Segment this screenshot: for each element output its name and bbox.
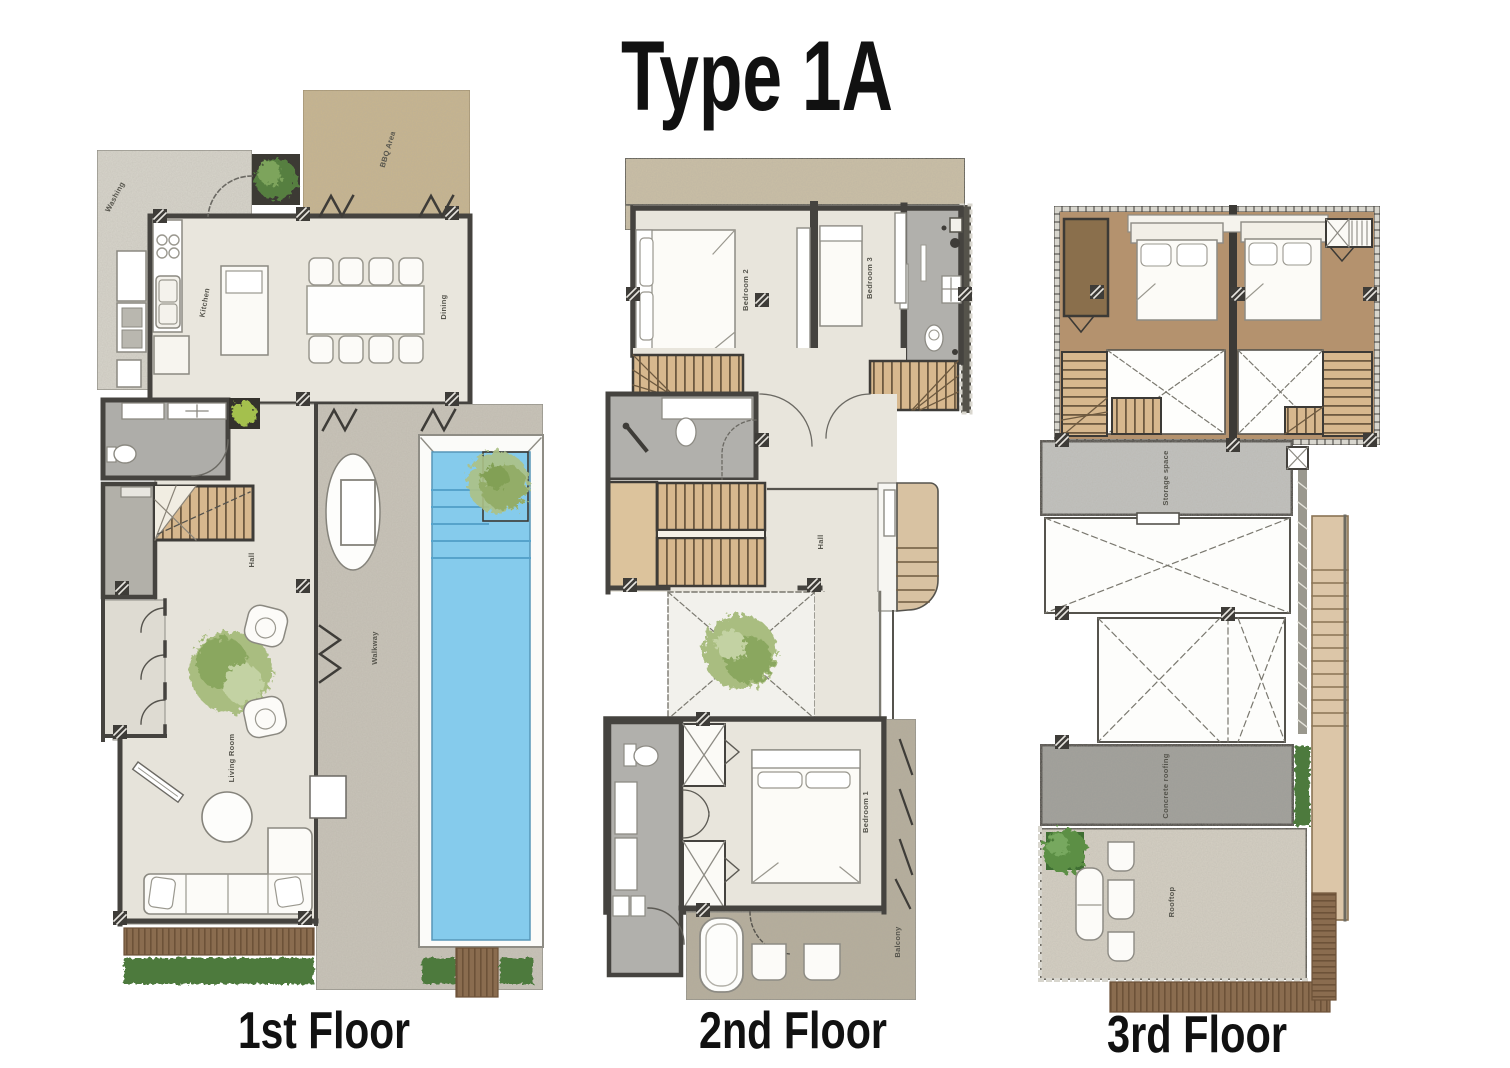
svg-text:Bedroom 2: Bedroom 2: [741, 269, 750, 311]
svg-text:Walkway: Walkway: [370, 631, 379, 665]
svg-text:Type 1A: Type 1A: [621, 20, 893, 131]
svg-text:Concrete roofing: Concrete roofing: [1161, 753, 1170, 818]
svg-text:1st Floor: 1st Floor: [238, 1002, 410, 1060]
svg-text:Living Room: Living Room: [227, 734, 236, 783]
svg-text:Balcony: Balcony: [893, 926, 902, 958]
svg-text:Rooftop: Rooftop: [1167, 886, 1176, 917]
svg-text:Bedroom 3: Bedroom 3: [865, 257, 874, 299]
svg-text:2nd Floor: 2nd Floor: [699, 1002, 887, 1060]
svg-text:Dining: Dining: [439, 294, 448, 319]
svg-text:Bedroom 1: Bedroom 1: [861, 791, 870, 833]
svg-text:Storage space: Storage space: [1161, 450, 1170, 505]
svg-text:Hall: Hall: [816, 535, 825, 550]
svg-text:3rd Floor: 3rd Floor: [1107, 1006, 1287, 1064]
svg-text:Hall: Hall: [247, 553, 256, 568]
